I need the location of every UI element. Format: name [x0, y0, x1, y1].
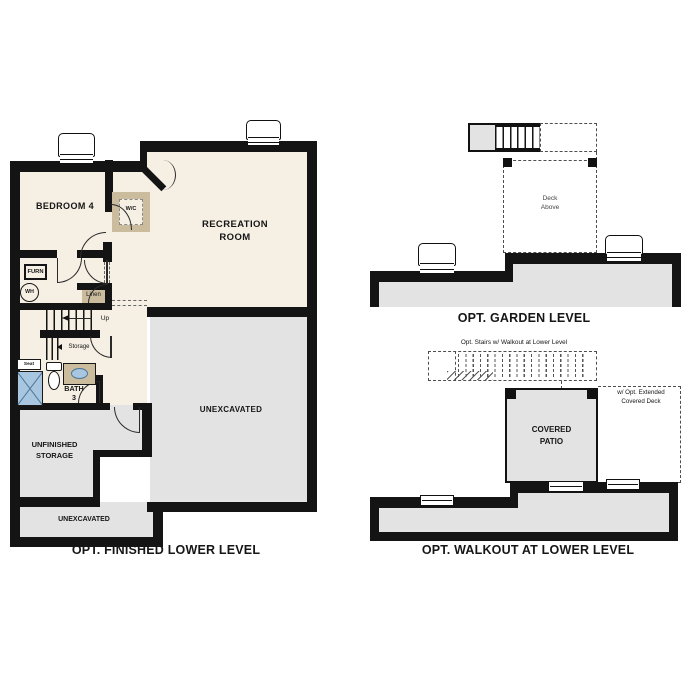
- window: [606, 479, 640, 490]
- garden-stair-landing: [468, 123, 497, 152]
- window: [420, 495, 454, 506]
- garden-stair-dashed-landing: [540, 123, 597, 152]
- wc-label: W/C: [117, 206, 145, 212]
- door-leaf: [110, 336, 112, 358]
- furnace: FURN: [24, 264, 47, 280]
- garden-building-interior: [513, 264, 672, 307]
- wall-segment: [307, 141, 317, 512]
- covered-patio-label-line2: PATIO: [506, 437, 597, 446]
- bath3-label-line1: BATH: [54, 384, 94, 393]
- unfinished-storage-label-line2: STORAGE: [17, 451, 92, 460]
- lower-level-caption: OPT. FINISHED LOWER LEVEL: [46, 543, 286, 557]
- garden-building-interior: [379, 282, 513, 307]
- stairs-direction-line: [68, 318, 92, 319]
- garden-level-caption: OPT. GARDEN LEVEL: [404, 311, 644, 325]
- wh-label: WH: [25, 289, 34, 295]
- bedroom4-label: BEDROOM 4: [20, 201, 110, 211]
- walkout-stair-overlap-ticks: [447, 371, 493, 380]
- window-sill: [420, 263, 454, 274]
- wall-segment: [505, 253, 672, 264]
- wall-segment: [140, 141, 317, 152]
- window-sill: [248, 137, 279, 146]
- garden-stairs: [495, 123, 540, 152]
- window: [548, 481, 584, 492]
- storage-arrow: [57, 344, 62, 350]
- window-sill: [60, 154, 93, 164]
- shower: [17, 371, 43, 406]
- unfinished-storage-label-line1: UNFINISHED: [17, 440, 92, 449]
- toilet-tank: [46, 362, 62, 371]
- deck-above-label-line1: Deck: [520, 195, 580, 202]
- wall-segment: [510, 482, 518, 508]
- wall-segment: [147, 307, 317, 317]
- covered-patio-label-line1: COVERED: [506, 425, 597, 434]
- deck-post: [588, 158, 597, 167]
- linen-label: Linen: [82, 292, 105, 298]
- storage-label: Storage: [64, 344, 94, 350]
- covered-patio: [505, 388, 598, 483]
- wall-segment: [142, 403, 152, 457]
- stairs-upper-run: [46, 310, 98, 331]
- door-leaf: [106, 260, 108, 284]
- wall-segment: [510, 482, 678, 493]
- door-leaf: [139, 407, 141, 433]
- unexcavated-label: UNEXCAVATED: [176, 405, 286, 414]
- window-sill: [607, 252, 641, 262]
- furn-label: FURN: [27, 269, 43, 275]
- patio-post: [507, 390, 516, 399]
- stairs-up-arrow: [62, 315, 69, 321]
- deck-post: [503, 158, 512, 167]
- wall-segment: [370, 271, 379, 307]
- up-label: Up: [97, 315, 113, 322]
- wall-segment: [10, 303, 112, 310]
- walkout-building-interior: [518, 492, 669, 532]
- walkout-level-caption: OPT. WALKOUT AT LOWER LEVEL: [388, 543, 668, 557]
- recreation-room-label-line2: ROOM: [180, 232, 290, 243]
- floorplan-sheet: Seat FURN WH BEDROOM 4 W/C RECREATION RO…: [0, 0, 687, 687]
- wall-segment: [10, 250, 57, 258]
- dashed-opening: [112, 300, 147, 306]
- seat-label: Seat: [24, 362, 34, 367]
- wall-segment: [10, 497, 100, 507]
- water-heater: WH: [20, 283, 39, 302]
- room-fill-unfinished-storage-lower: [15, 455, 95, 502]
- walkout-building-interior: [379, 507, 518, 532]
- wall-segment: [370, 532, 678, 541]
- sink: [71, 368, 88, 379]
- wall-segment: [10, 161, 20, 547]
- door-leaf: [99, 381, 101, 403]
- recreation-room-label-line1: RECREATION: [180, 219, 290, 230]
- deck-above-label-line2: Above: [520, 204, 580, 211]
- shower-seat: Seat: [17, 359, 41, 370]
- door-leaf: [57, 258, 59, 283]
- walkout-stairs-note: Opt. Stairs w/ Walkout at Lower Level: [414, 339, 614, 346]
- wall-segment: [505, 253, 513, 282]
- extended-deck-note-line1: w/ Opt. Extended: [602, 389, 680, 396]
- bath3-label-line2: 3: [54, 393, 94, 402]
- wall-segment: [672, 253, 681, 307]
- door-arc-recreation: [150, 160, 176, 190]
- extended-deck-note-line2: Covered Deck: [602, 398, 680, 405]
- unexcavated-strip-label: UNEXCAVATED: [39, 516, 129, 523]
- wall-segment: [93, 450, 100, 502]
- patio-post: [587, 390, 596, 399]
- wall-segment: [147, 502, 317, 512]
- wall-segment: [153, 502, 163, 547]
